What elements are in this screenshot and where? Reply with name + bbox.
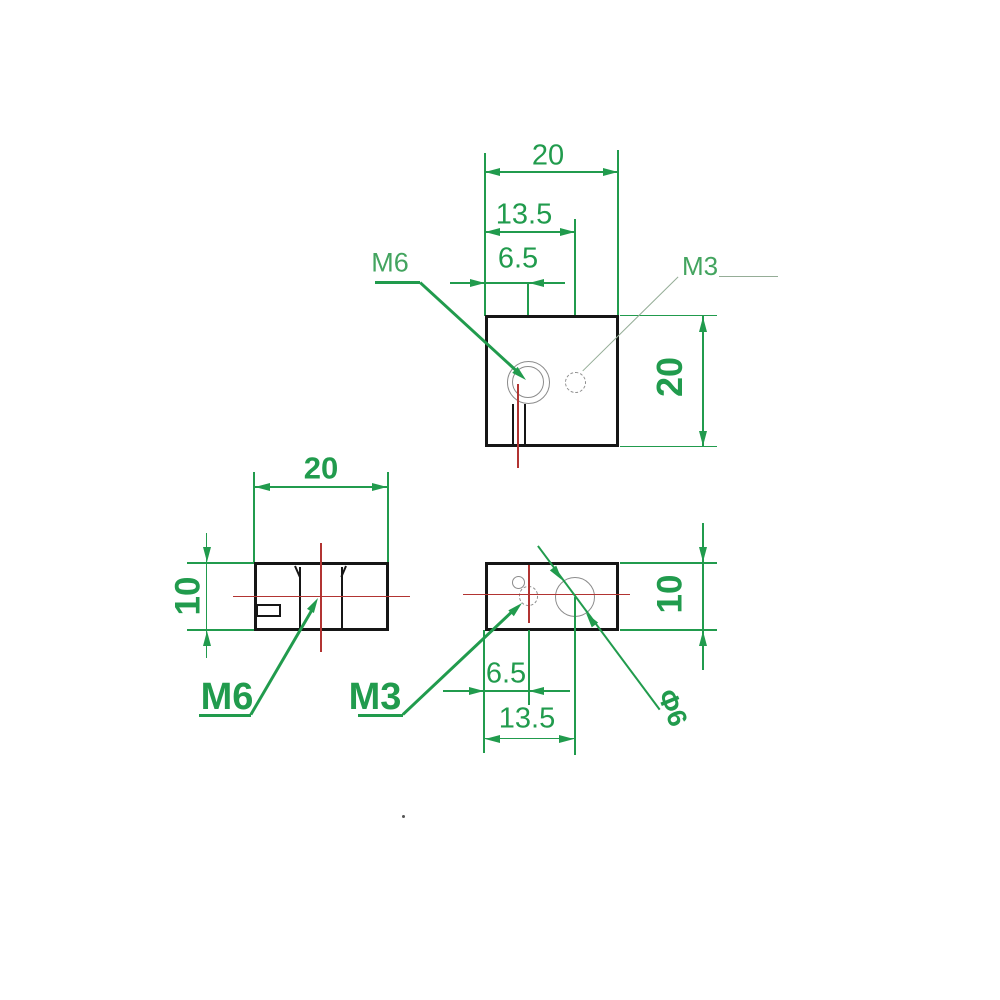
slot-edge bbox=[512, 404, 514, 447]
center-line bbox=[463, 594, 630, 596]
dimension-text: 20 bbox=[532, 142, 564, 171]
thread-label-m3: M3 bbox=[682, 253, 718, 279]
extension-line bbox=[574, 597, 576, 755]
dim-arrowhead bbox=[699, 547, 707, 562]
center-line bbox=[320, 543, 322, 652]
dim-arrowhead bbox=[469, 687, 484, 695]
dimension-text: 6.5 bbox=[486, 660, 526, 689]
m3-hole-circle bbox=[565, 372, 586, 393]
dimension-text: 20 bbox=[304, 453, 338, 484]
slot-outline bbox=[256, 604, 281, 617]
thread-label-m6: M6 bbox=[201, 678, 254, 716]
dimension-line bbox=[702, 316, 704, 447]
thread-label-m6: M6 bbox=[371, 250, 409, 277]
dimension-text: 13.5 bbox=[496, 201, 552, 230]
dimension-text: 13.5 bbox=[499, 705, 555, 734]
dim-arrowhead bbox=[372, 483, 387, 491]
dim-arrowhead bbox=[560, 228, 575, 236]
technical-drawing: 20 13.5 6.5 20 M6 M3 bbox=[0, 0, 1000, 1000]
dim-arrowhead bbox=[485, 735, 500, 743]
dim-arrowhead bbox=[529, 687, 544, 695]
dim-arrowhead bbox=[485, 168, 500, 176]
dim-arrowhead bbox=[699, 631, 707, 646]
ink-dot bbox=[402, 815, 405, 818]
dim-arrowhead bbox=[470, 279, 485, 287]
slot-edge bbox=[524, 404, 526, 447]
dim-arrowhead bbox=[699, 317, 707, 332]
dimension-line bbox=[450, 282, 565, 284]
center-line bbox=[517, 384, 519, 468]
dimension-line bbox=[702, 523, 704, 670]
dimension-text: 10 bbox=[653, 575, 688, 614]
dim-arrowhead bbox=[603, 168, 618, 176]
leader-underline bbox=[358, 714, 403, 717]
diameter-text: Φ6 bbox=[653, 686, 692, 731]
dim-arrowhead bbox=[203, 547, 211, 562]
dim-arrowhead bbox=[529, 279, 544, 287]
leader-underline bbox=[199, 714, 251, 717]
block-outline bbox=[485, 315, 619, 447]
dim-arrowhead bbox=[699, 431, 707, 446]
leader-line bbox=[719, 276, 778, 277]
leader-underline bbox=[375, 281, 420, 284]
dim-arrowhead bbox=[203, 631, 211, 646]
extension-line bbox=[187, 629, 254, 631]
dimension-line bbox=[443, 690, 570, 692]
dim-arrowhead bbox=[559, 735, 574, 743]
dimension-text: 6.5 bbox=[498, 245, 538, 274]
thread-label-m3: M3 bbox=[349, 678, 402, 716]
dim-arrowhead bbox=[255, 483, 270, 491]
extension-line bbox=[187, 562, 254, 564]
dimension-text: 10 bbox=[171, 577, 206, 616]
dimension-text: 20 bbox=[652, 357, 688, 397]
dimension-line bbox=[254, 486, 388, 488]
